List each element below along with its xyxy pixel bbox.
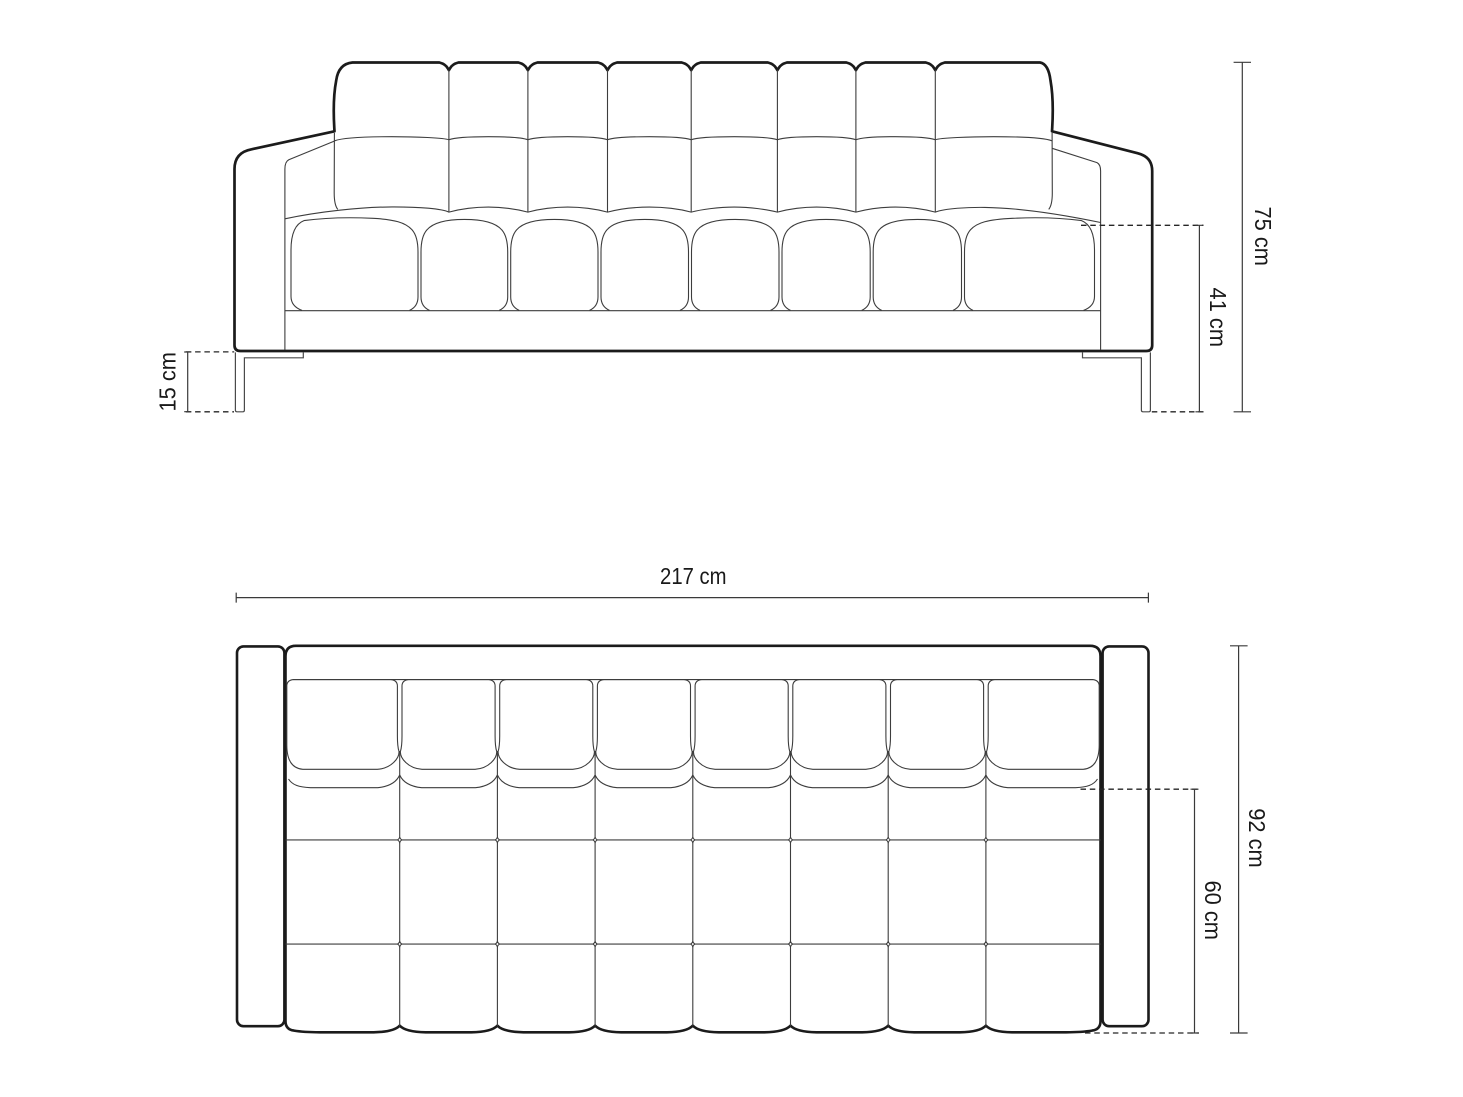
- svg-text:15 cm: 15 cm: [155, 352, 181, 412]
- svg-text:92 cm: 92 cm: [1244, 808, 1270, 868]
- svg-text:60 cm: 60 cm: [1200, 880, 1226, 940]
- svg-text:41 cm: 41 cm: [1205, 288, 1231, 348]
- svg-text:217 cm: 217 cm: [660, 563, 727, 589]
- svg-text:75 cm: 75 cm: [1250, 206, 1276, 266]
